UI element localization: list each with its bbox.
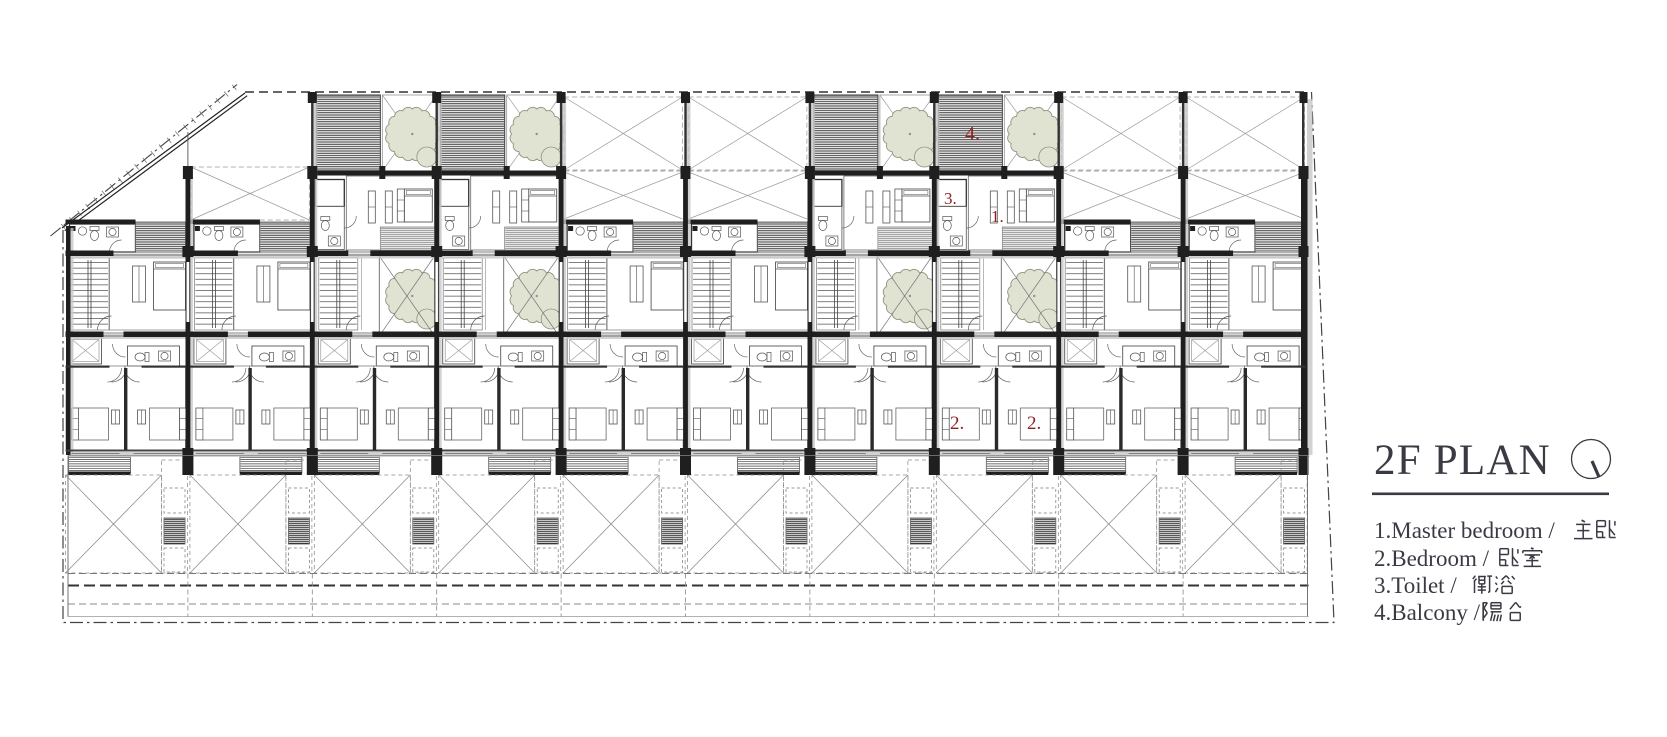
svg-text:3.Toilet /: 3.Toilet / <box>1374 573 1457 598</box>
svg-text:4.Balcony /: 4.Balcony / <box>1374 600 1481 625</box>
svg-text:2.: 2. <box>1027 413 1041 434</box>
svg-text:2.Bedroom /: 2.Bedroom / <box>1374 546 1490 571</box>
svg-text:4.: 4. <box>965 123 980 145</box>
svg-text:1.: 1. <box>991 207 1004 226</box>
svg-text:1.Master bedroom /: 1.Master bedroom / <box>1374 518 1555 543</box>
svg-text:3.: 3. <box>944 189 957 208</box>
svg-text:2.: 2. <box>950 413 964 434</box>
svg-text:2F PLAN: 2F PLAN <box>1374 437 1551 484</box>
